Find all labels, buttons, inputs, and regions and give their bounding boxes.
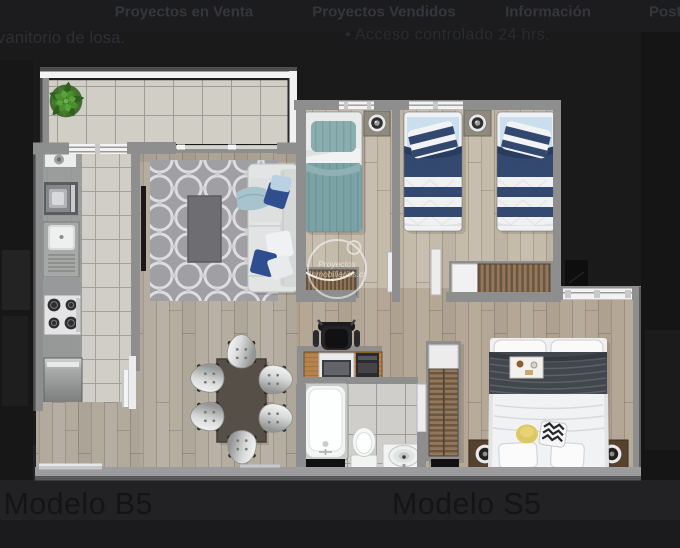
svg-text:vanitorio de losa.: vanitorio de losa. xyxy=(0,29,125,47)
svg-text:Proyectos: Proyectos xyxy=(318,259,357,269)
svg-text:Información: Información xyxy=(505,4,591,21)
svg-text:Proyectos en Venta: Proyectos en Venta xyxy=(115,4,254,21)
svg-text:Postu: Postu xyxy=(649,4,680,21)
svg-text:• Acceso controlado 24 hrs.: • Acceso controlado 24 hrs. xyxy=(345,27,550,44)
svg-text:Modelo S5: Modelo S5 xyxy=(392,487,541,521)
svg-text:Modelo B5: Modelo B5 xyxy=(4,487,153,521)
svg-text:Proyectos Vendidos: Proyectos Vendidos xyxy=(312,4,455,21)
svg-text:Inmobiliarios.cl: Inmobiliarios.cl xyxy=(309,269,366,279)
